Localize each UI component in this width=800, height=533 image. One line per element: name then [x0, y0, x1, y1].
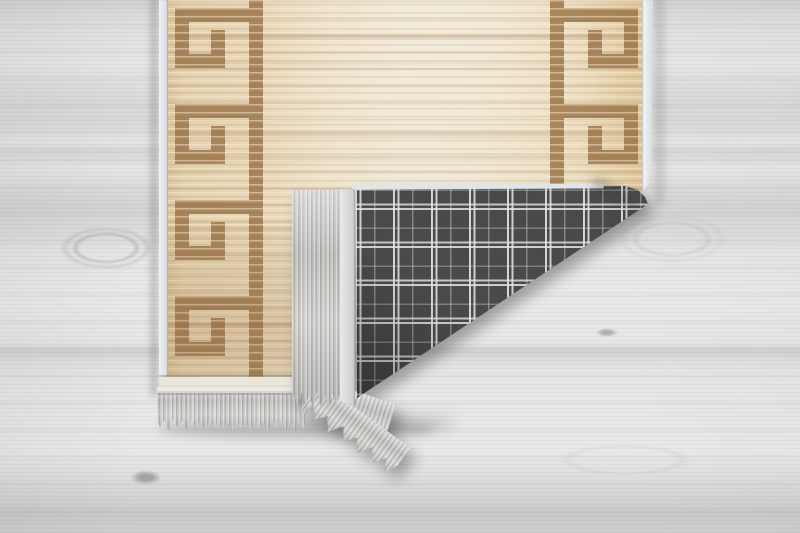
flap-fringe — [292, 190, 340, 408]
wood-knot — [130, 470, 162, 485]
rug-right-shadow — [655, 0, 664, 204]
wood-knot — [540, 440, 710, 480]
flap-hem-binding — [340, 189, 355, 404]
rug-left-shadow — [150, 0, 158, 396]
wood-knot — [58, 226, 154, 270]
bottom-fringe — [157, 387, 307, 432]
edge-binding-right — [642, 0, 653, 196]
folded-corner-flap — [292, 184, 656, 442]
plaid-backing — [355, 186, 649, 400]
product-photo-rug — [0, 0, 800, 533]
